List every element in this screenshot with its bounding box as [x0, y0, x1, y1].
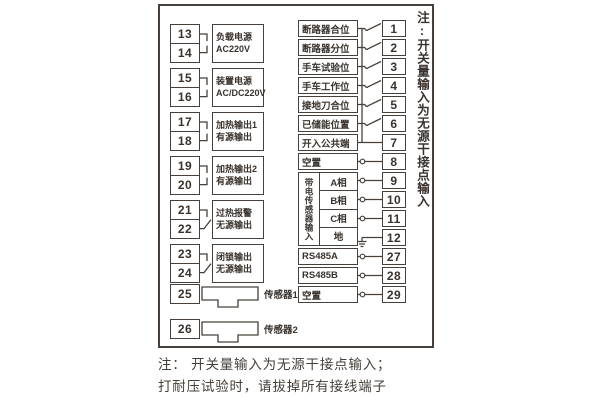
live-sensor-group-vertical-label: 带电传感器输入 — [299, 173, 320, 245]
live-sensor-group: 带电传感器输入A相B相C相地 — [298, 172, 358, 246]
contact-circle-icon — [360, 216, 365, 221]
hook-connector-icon — [200, 254, 207, 261]
terminal-number-9: 9 — [382, 172, 406, 189]
contact-circle-icon — [360, 254, 365, 259]
hook-connector-icon — [200, 34, 207, 41]
terminal-number-23: 23 — [170, 244, 200, 264]
row-label-1: 断路器合位 — [298, 20, 358, 37]
hook-connector-icon — [200, 122, 207, 129]
ground-icon — [358, 242, 367, 247]
function-label: 过热报警无源输出 — [212, 200, 264, 239]
terminal-number-13: 13 — [170, 24, 200, 44]
bottom-note-line2: 打耐压试验时，请拔掉所有接线端子 — [158, 375, 387, 395]
terminal-number-15: 15 — [170, 68, 200, 88]
function-label-line: AC/DC220V — [216, 87, 263, 99]
terminal-number-16: 16 — [170, 87, 200, 107]
function-label: 加热输出2有源输出 — [212, 156, 264, 195]
phase-label-11: C相 — [320, 210, 357, 228]
switch-blade-icon — [368, 100, 382, 107]
terminal-number-10: 10 — [382, 191, 406, 208]
terminal-number-22: 22 — [170, 219, 200, 239]
sensor-label: 传感器2 — [264, 322, 298, 335]
switch-blade-icon — [368, 24, 382, 31]
terminal-number-28: 28 — [382, 267, 406, 284]
function-label: 负载电源AC220V — [212, 24, 264, 63]
hook-connector-icon — [200, 210, 207, 217]
contact-circle-icon — [360, 178, 365, 183]
terminal-number-7: 7 — [382, 134, 406, 151]
function-label-line: 加热输出2 — [216, 163, 263, 175]
side-note: 注:开关量输入为无源干接点输入 — [406, 11, 432, 226]
sensor-plug-icon — [202, 287, 258, 307]
row-label-7: 开入公共端 — [298, 134, 358, 151]
function-label-line: 无源输出 — [216, 219, 263, 231]
terminal-number-24: 24 — [170, 263, 200, 283]
phase-label-9: A相 — [320, 173, 357, 191]
row-label-2: 断路器分位 — [298, 39, 358, 56]
phase-label-12: 地 — [320, 228, 357, 245]
terminal-number-29: 29 — [382, 286, 406, 303]
terminal-number-21: 21 — [170, 200, 200, 220]
terminal-number-3: 3 — [382, 58, 406, 75]
terminal-number-17: 17 — [170, 112, 200, 132]
contact-circle-icon — [360, 197, 365, 202]
hook-connector-icon — [200, 166, 207, 173]
hook-connector-icon — [200, 178, 207, 185]
row-label-8: 空置 — [298, 153, 358, 170]
row-label-4: 手车工作位 — [298, 77, 358, 94]
terminal-number-14: 14 — [170, 43, 200, 63]
function-label-line: 加热输出1 — [216, 119, 263, 131]
terminal-number-6: 6 — [382, 115, 406, 132]
function-label: 闭锁输出无源输出 — [212, 244, 264, 283]
switch-blade-icon — [368, 119, 382, 126]
function-label-line: 装置电源 — [216, 75, 263, 87]
function-label-line: AC220V — [216, 43, 263, 55]
terminal-number-18: 18 — [170, 131, 200, 151]
hook-connector-icon — [200, 90, 207, 97]
contact-blade-icon — [200, 220, 211, 229]
row-label-27: RS485A — [298, 248, 358, 265]
function-label-line: 负载电源 — [216, 31, 263, 43]
switch-blade-icon — [368, 62, 382, 69]
hook-connector-icon — [200, 134, 207, 141]
switch-blade-icon — [368, 43, 382, 50]
terminal-number-5: 5 — [382, 96, 406, 113]
function-label-line: 闭锁输出 — [216, 251, 263, 263]
function-label-line: 无源输出 — [216, 263, 263, 275]
live-sensor-group-rows: A相B相C相地 — [320, 173, 357, 245]
terminal-number-27: 27 — [382, 248, 406, 265]
terminal-number-19: 19 — [170, 156, 200, 176]
row-label-3: 手车试验位 — [298, 58, 358, 75]
bottom-note-line1: 注： 开关量输入为无源干接点输入； — [158, 353, 391, 373]
function-label-line: 过热报警 — [216, 207, 263, 219]
contact-blade-icon — [200, 264, 211, 273]
wiring-diagram: 1314负载电源AC220V1516装置电源AC/DC220V1718加热输出1… — [0, 0, 600, 400]
contact-circle-icon — [360, 273, 365, 278]
terminal-diagram-frame: 1314负载电源AC220V1516装置电源AC/DC220V1718加热输出1… — [158, 4, 434, 348]
terminal-number-12: 12 — [382, 229, 406, 246]
contact-circle-icon — [360, 159, 365, 164]
terminal-number-2: 2 — [382, 39, 406, 56]
function-label: 加热输出1有源输出 — [212, 112, 264, 151]
terminal-number-26: 26 — [170, 319, 200, 339]
terminal-number-8: 8 — [382, 153, 406, 170]
row-label-29: 空置 — [298, 286, 358, 303]
phase-label-10: B相 — [320, 191, 357, 209]
row-label-5: 接地刀合位 — [298, 96, 358, 113]
hook-connector-icon — [200, 46, 207, 53]
hook-connector-icon — [200, 78, 207, 85]
contact-circle-icon — [360, 292, 365, 297]
terminal-number-25: 25 — [170, 284, 200, 304]
terminal-number-20: 20 — [170, 175, 200, 195]
row-label-6: 已储能位置 — [298, 115, 358, 132]
terminal-number-4: 4 — [382, 77, 406, 94]
sensor-plug-icon — [202, 322, 258, 342]
terminal-number-11: 11 — [382, 210, 406, 227]
terminal-number-1: 1 — [382, 20, 406, 37]
function-label-line: 有源输出 — [216, 175, 263, 187]
row-label-28: RS485B — [298, 267, 358, 284]
function-label-line: 有源输出 — [216, 131, 263, 143]
sensor-label: 传感器1 — [264, 287, 298, 300]
switch-blade-icon — [368, 81, 382, 88]
function-label: 装置电源AC/DC220V — [212, 68, 264, 107]
